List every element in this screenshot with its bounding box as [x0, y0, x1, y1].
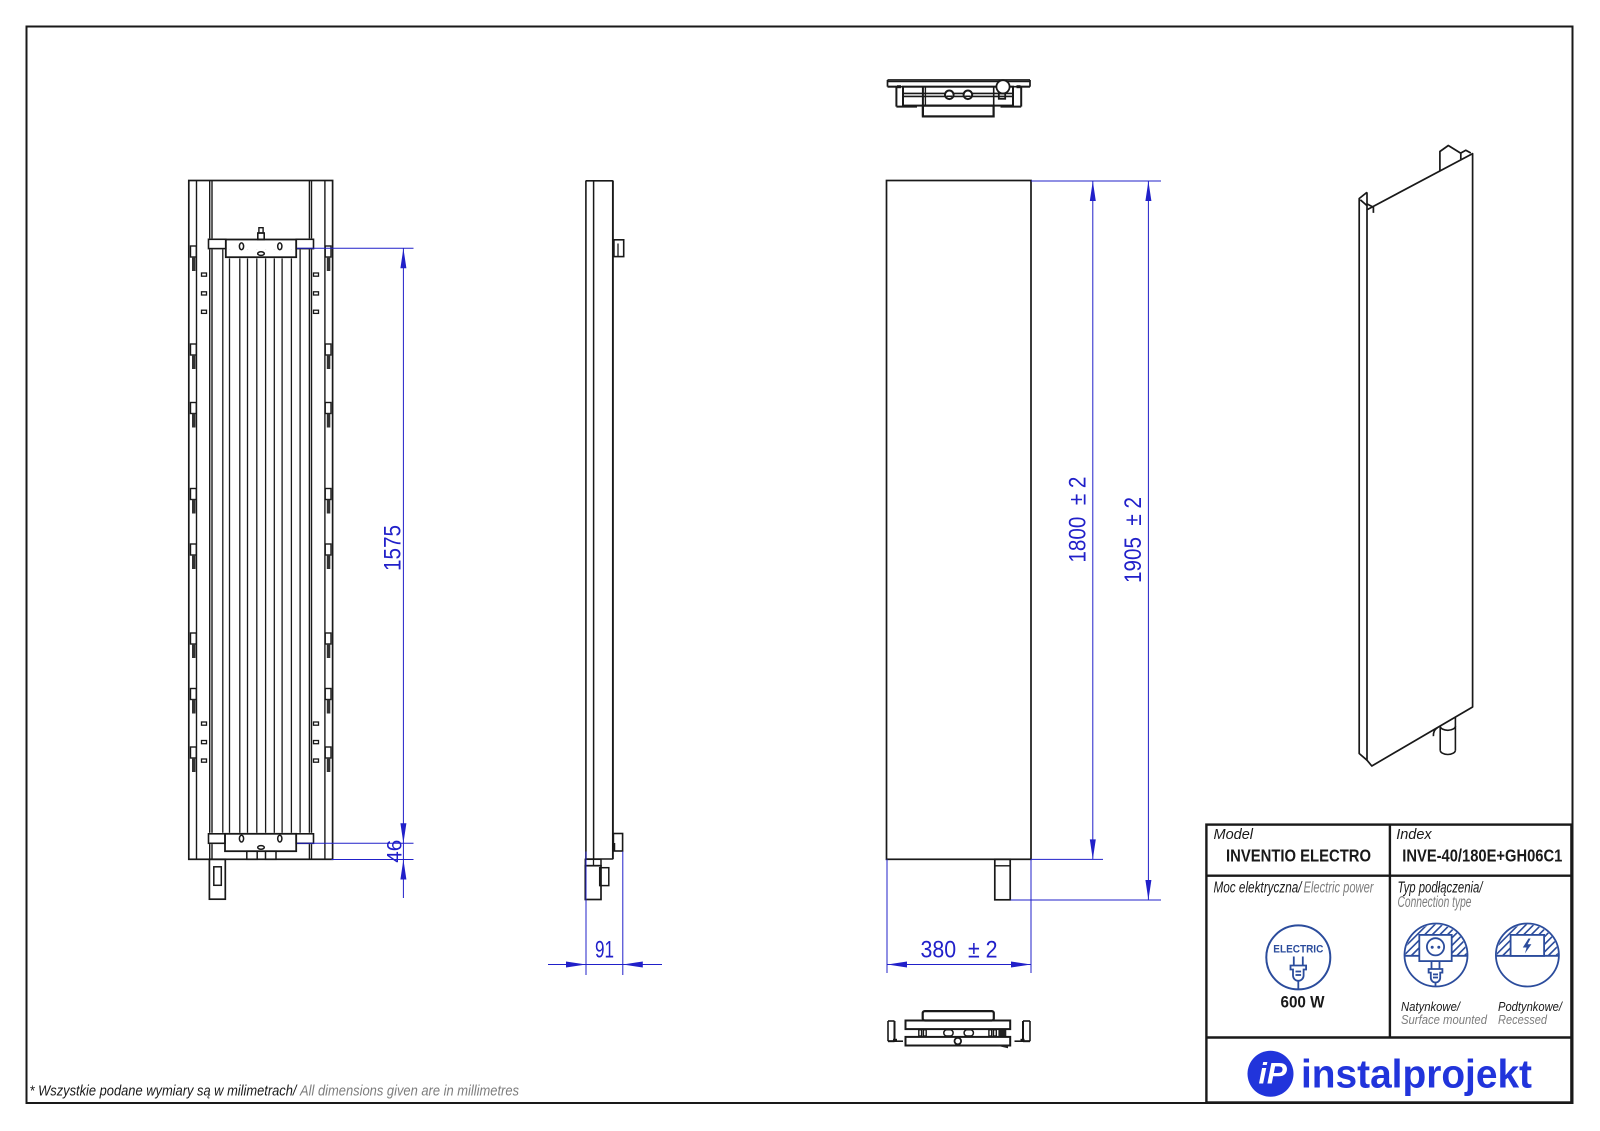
- svg-text:Connection type: Connection type: [1398, 894, 1472, 911]
- svg-text:Surface mounted: Surface mounted: [1401, 1012, 1488, 1027]
- svg-text:INVE-40/180E+GH06C1: INVE-40/180E+GH06C1: [1402, 846, 1562, 866]
- svg-text:iP: iP: [1259, 1058, 1288, 1091]
- svg-text:91: 91: [595, 937, 614, 964]
- svg-text:Recessed: Recessed: [1498, 1012, 1548, 1027]
- svg-text:Model: Model: [1214, 827, 1254, 843]
- svg-text:1800 ± 2: 1800 ± 2: [1065, 477, 1092, 563]
- svg-text:INVENTIO ELECTRO: INVENTIO ELECTRO: [1226, 846, 1371, 866]
- svg-text:1905 ± 2: 1905 ± 2: [1120, 497, 1147, 583]
- svg-text:1575: 1575: [380, 525, 407, 571]
- svg-text:ELECTRIC: ELECTRIC: [1273, 944, 1323, 956]
- svg-text:600 W: 600 W: [1281, 994, 1325, 1012]
- svg-text:Moc elektryczna/: Moc elektryczna/: [1214, 880, 1303, 897]
- svg-text:Index: Index: [1396, 827, 1432, 843]
- svg-text:380 ± 2: 380 ± 2: [921, 937, 998, 964]
- svg-text:Electric power: Electric power: [1304, 880, 1375, 897]
- svg-text:* Wszystkie podane wymiary są: * Wszystkie podane wymiary są w milimetr…: [30, 1083, 299, 1100]
- svg-text:All dimensions given are in mi: All dimensions given are in millimetres: [299, 1083, 519, 1100]
- svg-text:instalprojekt: instalprojekt: [1301, 1053, 1532, 1097]
- svg-text:46: 46: [384, 840, 407, 863]
